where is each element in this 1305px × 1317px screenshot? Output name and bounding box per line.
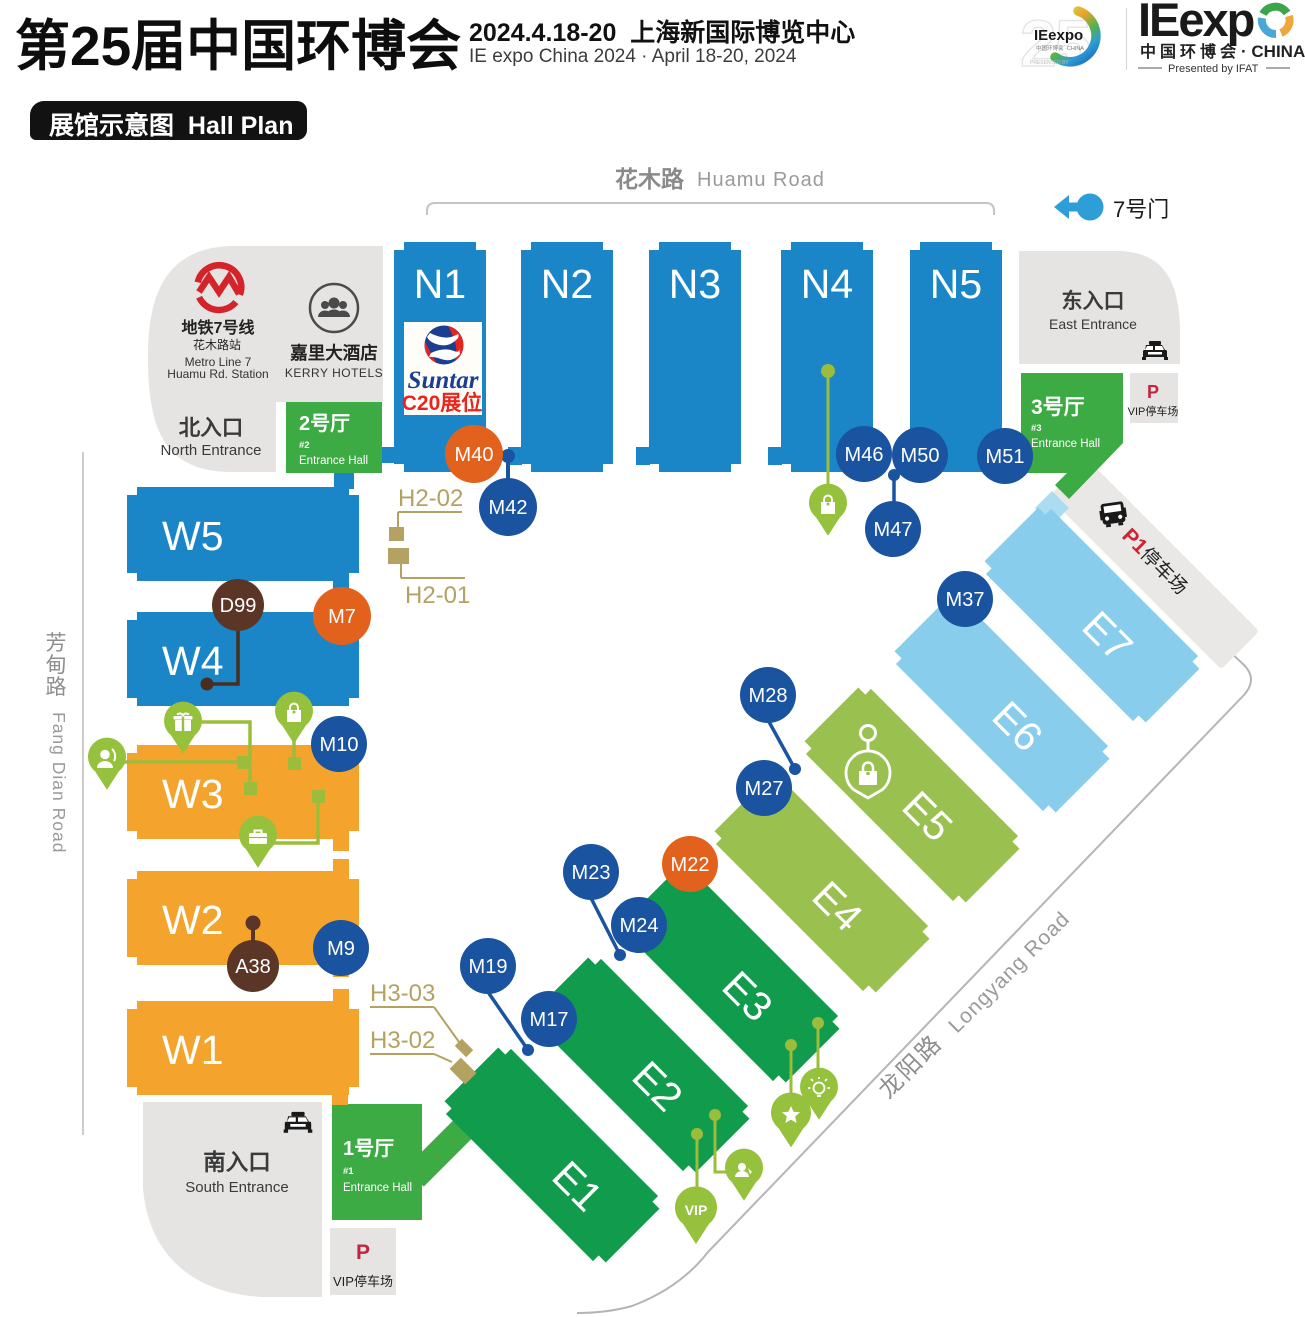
svg-text:Huamu Road: Huamu Road [697, 169, 825, 191]
svg-text:M22: M22 [671, 854, 710, 876]
svg-text:VIP停车场: VIP停车场 [1128, 404, 1179, 418]
svg-text:C20展位: C20展位 [402, 391, 483, 415]
svg-text:N3: N3 [669, 261, 721, 307]
svg-text:P: P [1147, 382, 1159, 402]
svg-text:北入口: 北入口 [179, 416, 244, 440]
svg-text:Entrance Hall: Entrance Hall [1031, 438, 1100, 450]
svg-text:W1: W1 [162, 1027, 224, 1073]
svg-text:M19: M19 [469, 956, 508, 978]
svg-text:H3-03: H3-03 [370, 980, 435, 1007]
svg-text:M46: M46 [845, 444, 884, 466]
svg-text:M24: M24 [620, 915, 659, 937]
svg-text:VIP: VIP [685, 1202, 708, 1218]
svg-text:Suntar: Suntar [408, 367, 479, 394]
svg-text:M28: M28 [749, 685, 788, 707]
svg-text:East Entrance: East Entrance [1049, 316, 1137, 332]
svg-text:H3-02: H3-02 [370, 1027, 435, 1054]
svg-text:南入口: 南入口 [203, 1150, 271, 1175]
svg-text:W3: W3 [162, 771, 224, 817]
svg-text:South Entrance: South Entrance [185, 1179, 288, 1196]
svg-text:W5: W5 [162, 513, 224, 559]
svg-text:M40: M40 [455, 444, 494, 466]
svg-text:地铁7号线: 地铁7号线 [182, 318, 255, 337]
svg-text:#2: #2 [299, 440, 310, 451]
svg-text:H2-02: H2-02 [398, 485, 463, 512]
svg-text:H2-01: H2-01 [405, 582, 470, 609]
svg-text:W2: W2 [162, 897, 224, 943]
svg-text:Entrance Hall: Entrance Hall [299, 455, 368, 467]
svg-text:M10: M10 [320, 734, 359, 756]
svg-text:D99: D99 [220, 595, 257, 617]
svg-text:M51: M51 [986, 446, 1025, 468]
svg-text:N5: N5 [930, 261, 982, 307]
svg-text:甸: 甸 [46, 654, 67, 677]
svg-text:2号厅: 2号厅 [299, 412, 350, 435]
svg-text:A38: A38 [235, 956, 271, 978]
svg-text:Entrance Hall: Entrance Hall [343, 1182, 412, 1194]
svg-text:W4: W4 [162, 638, 224, 684]
svg-text:7号门: 7号门 [1113, 197, 1169, 222]
svg-text:VIP停车场: VIP停车场 [333, 1274, 393, 1289]
svg-text:#3: #3 [1031, 423, 1042, 434]
svg-text:东入口: 东入口 [1062, 289, 1125, 313]
svg-text:M50: M50 [901, 445, 940, 467]
svg-text:M42: M42 [489, 497, 528, 519]
svg-text:花木路: 花木路 [615, 166, 685, 192]
svg-text:3号厅: 3号厅 [1031, 396, 1085, 419]
svg-text:Longyang Road: Longyang Road [944, 907, 1074, 1037]
svg-text:芳: 芳 [46, 632, 67, 655]
svg-text:1号厅: 1号厅 [343, 1137, 394, 1160]
svg-text:M17: M17 [530, 1009, 569, 1031]
svg-text:N1: N1 [414, 261, 466, 307]
svg-text:M37: M37 [946, 589, 985, 611]
svg-text:路: 路 [46, 676, 67, 699]
svg-text:M7: M7 [328, 606, 356, 628]
svg-text:N4: N4 [801, 261, 853, 307]
svg-text:嘉里大酒店: 嘉里大酒店 [289, 343, 378, 363]
svg-text:North Entrance: North Entrance [161, 442, 262, 459]
svg-text:KERRY HOTELS: KERRY HOTELS [285, 366, 383, 380]
svg-text:Fang Dian Road: Fang Dian Road [49, 712, 69, 853]
svg-text:花木路站: 花木路站 [193, 337, 241, 352]
svg-text:#1: #1 [343, 1166, 354, 1177]
svg-text:Huamu Rd. Station: Huamu Rd. Station [167, 367, 268, 381]
svg-text:P: P [356, 1241, 370, 1264]
svg-text:N2: N2 [541, 261, 593, 307]
svg-text:M9: M9 [327, 938, 355, 960]
svg-text:M23: M23 [572, 862, 611, 884]
svg-text:M47: M47 [874, 519, 913, 541]
svg-text:M27: M27 [745, 778, 784, 800]
